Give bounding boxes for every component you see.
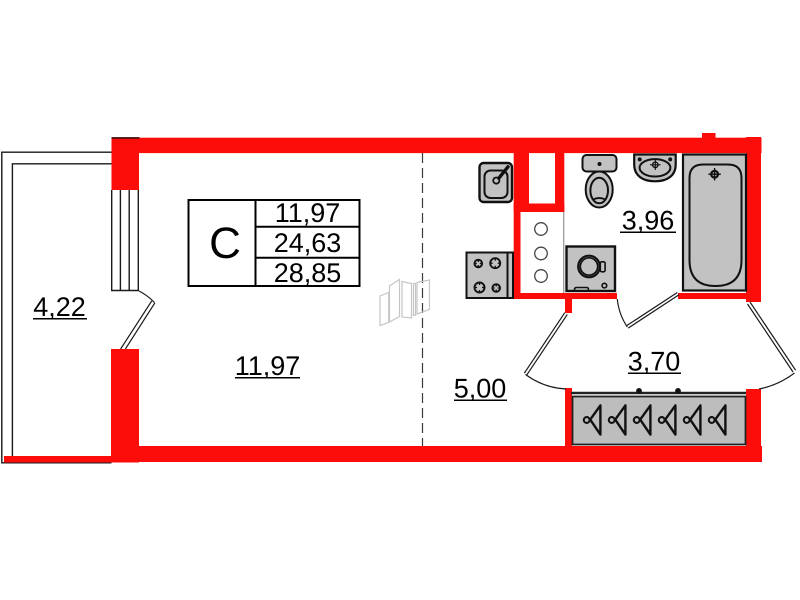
svg-text:4,22: 4,22 — [33, 292, 86, 322]
svg-text:11,97: 11,97 — [275, 198, 341, 228]
svg-text:3,70: 3,70 — [628, 347, 681, 377]
svg-text:5,00: 5,00 — [454, 374, 507, 404]
svg-text:С: С — [209, 219, 241, 268]
svg-text:3,96: 3,96 — [622, 206, 675, 236]
svg-text:24,63: 24,63 — [274, 228, 342, 258]
svg-text:11,97: 11,97 — [235, 351, 301, 381]
svg-text:28,85: 28,85 — [274, 258, 342, 288]
